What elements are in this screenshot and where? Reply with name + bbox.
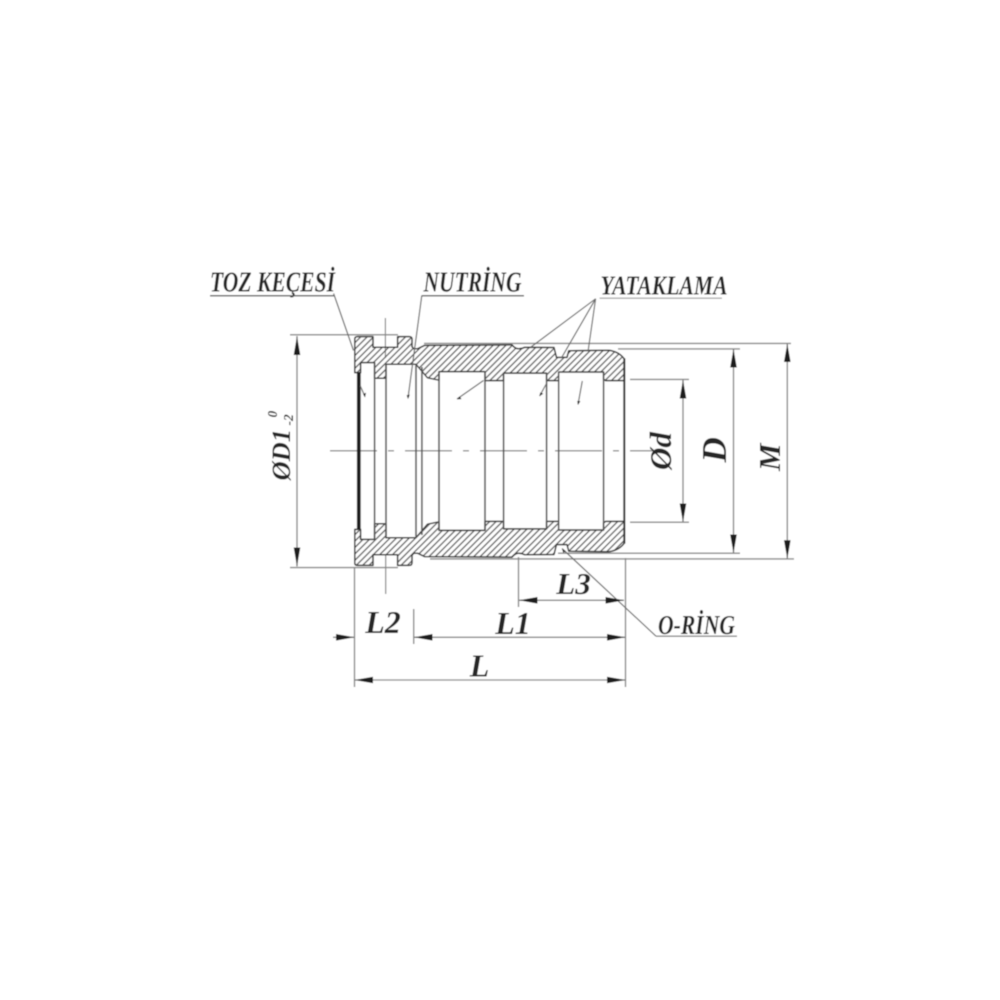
svg-text:D: D <box>695 437 734 463</box>
svg-text:L3: L3 <box>555 566 590 601</box>
svg-text:ØD1: ØD1 <box>266 429 296 482</box>
svg-text:-2: -2 <box>281 414 296 425</box>
svg-text:0: 0 <box>265 411 280 418</box>
svg-text:L1: L1 <box>494 605 531 641</box>
svg-text:M: M <box>752 442 787 472</box>
svg-text:NUTRİNG: NUTRİNG <box>423 268 522 299</box>
svg-text:L2: L2 <box>364 604 401 640</box>
svg-text:TOZ KEÇESİ: TOZ KEÇESİ <box>210 268 336 299</box>
svg-text:O-RİNG: O-RİNG <box>658 610 735 640</box>
svg-text:Ød: Ød <box>643 432 678 471</box>
svg-text:YATAKLAMA: YATAKLAMA <box>601 271 728 301</box>
svg-text:L: L <box>469 648 490 684</box>
